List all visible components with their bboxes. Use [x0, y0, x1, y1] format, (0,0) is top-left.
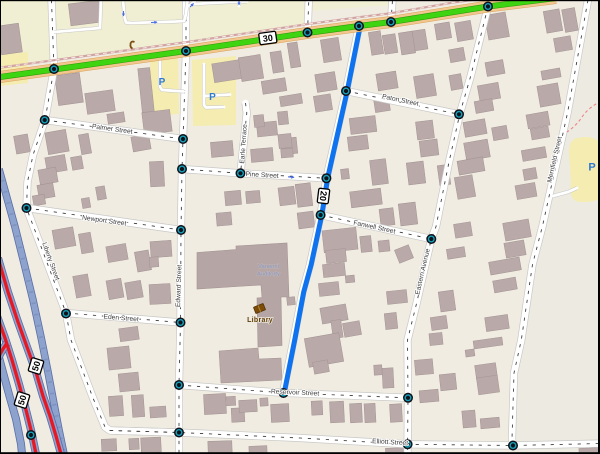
svg-text:P: P — [209, 92, 216, 103]
svg-text:20: 20 — [318, 190, 329, 201]
svg-text:Auditorty: Auditorty — [257, 272, 280, 278]
svg-text:Library: Library — [247, 317, 273, 324]
svg-text:Vanenni: Vanenni — [258, 264, 279, 270]
svg-text:Edward Street: Edward Street — [175, 265, 183, 308]
svg-text:30: 30 — [262, 33, 273, 44]
svg-text:P: P — [588, 162, 595, 174]
svg-text:P: P — [159, 77, 166, 88]
